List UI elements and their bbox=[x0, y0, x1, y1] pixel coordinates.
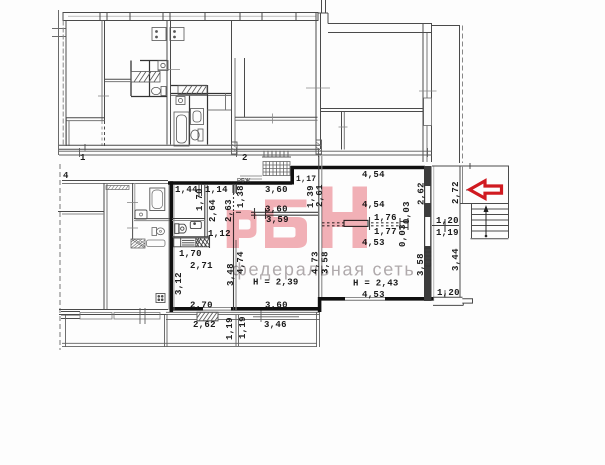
svg-text:1,19: 1,19 bbox=[238, 316, 248, 339]
svg-text:2,70: 2,70 bbox=[190, 301, 213, 311]
svg-text:1: 1 bbox=[80, 153, 86, 163]
svg-text:1,17: 1,17 bbox=[296, 175, 316, 184]
svg-text:1,76: 1,76 bbox=[374, 213, 397, 223]
svg-text:3,44: 3,44 bbox=[451, 248, 461, 271]
svg-text:3,46: 3,46 bbox=[264, 320, 287, 330]
svg-text:2: 2 bbox=[242, 153, 248, 163]
svg-text:4: 4 bbox=[63, 171, 69, 181]
svg-text:РБЖ: РБЖ bbox=[237, 179, 251, 185]
svg-text:2,64: 2,64 bbox=[208, 199, 218, 222]
svg-text:4,53: 4,53 bbox=[362, 290, 385, 300]
svg-text:1,14: 1,14 bbox=[205, 185, 228, 195]
svg-text:0,03: 0,03 bbox=[398, 224, 408, 247]
svg-text:1,70: 1,70 bbox=[195, 188, 205, 211]
svg-text:2,62: 2,62 bbox=[193, 320, 216, 330]
svg-text:3,12: 3,12 bbox=[174, 272, 184, 295]
svg-text:Н = 2,43: Н = 2,43 bbox=[353, 279, 399, 289]
svg-text:3,58: 3,58 bbox=[416, 253, 426, 276]
svg-text:2,72: 2,72 bbox=[451, 181, 461, 204]
svg-text:федеральная сеть: федеральная сеть bbox=[232, 260, 416, 280]
svg-text:1,77: 1,77 bbox=[374, 227, 397, 237]
svg-text:1,20: 1,20 bbox=[437, 288, 460, 298]
svg-text:2,71: 2,71 bbox=[190, 261, 213, 271]
svg-text:2,62: 2,62 bbox=[417, 182, 427, 205]
svg-text:3,60: 3,60 bbox=[265, 185, 288, 195]
svg-text:1,20: 1,20 bbox=[436, 216, 459, 226]
svg-text:1,38: 1,38 bbox=[236, 185, 246, 208]
svg-text:1,70: 1,70 bbox=[179, 249, 202, 259]
svg-text:1,19: 1,19 bbox=[225, 317, 235, 340]
svg-text:4,54: 4,54 bbox=[362, 170, 385, 180]
svg-text:1,19: 1,19 bbox=[436, 228, 459, 238]
svg-text:0,03: 0,03 bbox=[402, 201, 412, 224]
svg-text:3,60: 3,60 bbox=[265, 301, 288, 311]
